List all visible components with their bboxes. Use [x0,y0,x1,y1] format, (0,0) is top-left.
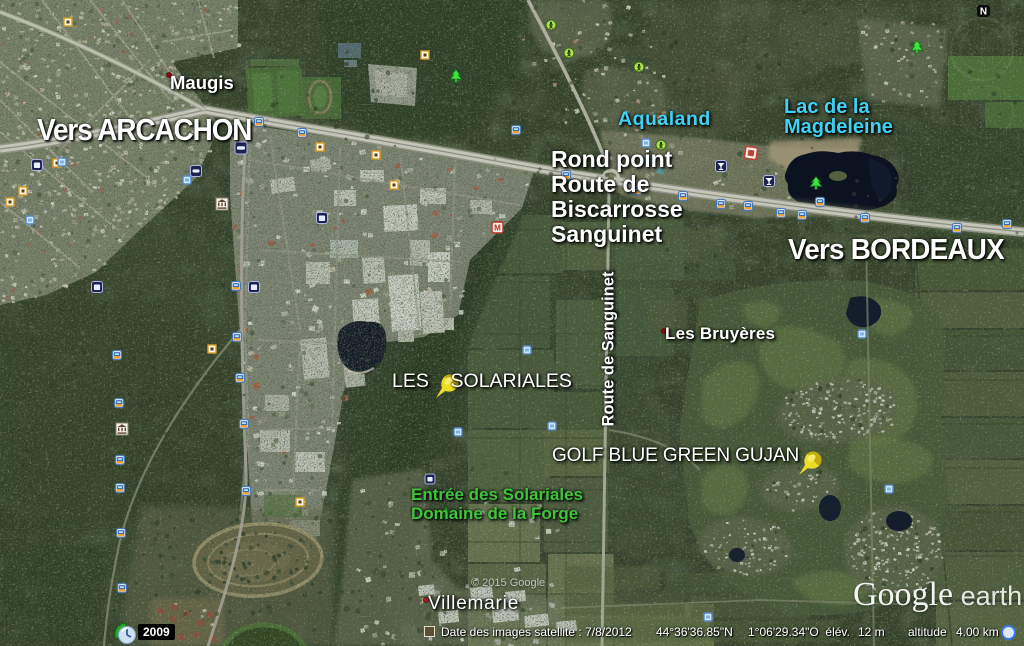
svg-text:M: M [494,224,501,233]
svg-text:N: N [980,7,987,18]
